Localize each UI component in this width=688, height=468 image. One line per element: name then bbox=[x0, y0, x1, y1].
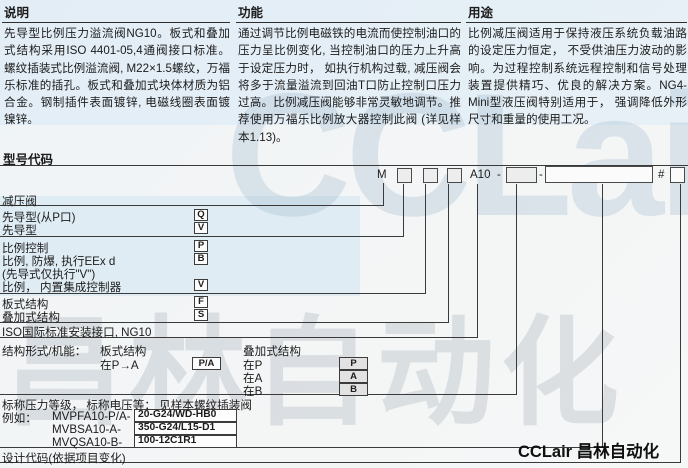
connector-box3 bbox=[448, 184, 449, 322]
label-iso-interface: ISO国际标准安装接口, NG10 bbox=[2, 324, 151, 340]
label-structure-header: 结构形式/机能： bbox=[2, 343, 86, 359]
section-application: 用途 比例减压阀适用于保持液压系统负载油路的设定压力恒定， 不受供油压力波动的影… bbox=[466, 2, 687, 129]
connector-a10 bbox=[477, 184, 478, 337]
code-prefix-m: M bbox=[377, 169, 387, 181]
reseller-logo-text: CCLair 昌林自动化 bbox=[518, 438, 659, 462]
example-value-3: 100-12C1R1 bbox=[134, 435, 237, 448]
rule-reducing-valve bbox=[0, 205, 384, 206]
section-function: 功能 通过调节比例电磁铁的电流而使控制油口的压力呈比例变化, 当控制油口的压力上… bbox=[236, 2, 461, 146]
function-body: 通过调节比例电磁铁的电流而使控制油口的压力呈比例变化, 当控制油口的压力上升高于… bbox=[238, 25, 461, 146]
code-box-design bbox=[670, 167, 685, 183]
example-model-3: MVQSA10-B- bbox=[52, 436, 122, 449]
codebox-p: P bbox=[194, 240, 208, 252]
application-title: 用途 bbox=[466, 2, 687, 23]
label-reducing-valve: 减压阀 bbox=[2, 193, 37, 209]
description-title: 说明 bbox=[2, 2, 230, 23]
label-examples: 例如： bbox=[2, 410, 37, 426]
example-model-2: MVBSA10-A- bbox=[52, 423, 121, 436]
code-box-pressure bbox=[506, 167, 537, 183]
codebox-stack-b: B bbox=[339, 383, 368, 396]
description-body: 先导型比例压力溢流阀NG10。板式和叠加式结构采用ISO 4401-05,4通阀… bbox=[4, 25, 230, 129]
code-hash: # bbox=[658, 169, 664, 181]
application-body: 比例减压阀适用于保持液压系统负载油路的设定压力恒定， 不受供油压力波动的影响。为… bbox=[468, 25, 687, 129]
code-dash-1: - bbox=[497, 169, 501, 181]
example-model-1: MVPFA10-P/A- bbox=[52, 410, 131, 423]
codebox-stack-p: P bbox=[339, 357, 368, 370]
codebox-q: Q bbox=[194, 209, 208, 221]
code-series-a10: A10 bbox=[470, 169, 490, 181]
connector-optionsbox bbox=[602, 184, 603, 447]
label-pilot: 先导型 bbox=[2, 222, 37, 238]
rule-mounting-group bbox=[0, 322, 449, 323]
catalog-page: CCLair 昌林自动化 说明 先导型比例压力溢流阀NG10。板式和叠加式结构采… bbox=[0, 0, 688, 468]
section-description: 说明 先导型比例压力溢流阀NG10。板式和叠加式结构采用ISO 4401-05,… bbox=[2, 2, 230, 129]
label-stack-type: 叠加式结构 bbox=[2, 309, 60, 325]
codebox-f: F bbox=[194, 296, 208, 308]
connector-pressurebox bbox=[516, 184, 517, 394]
codebox-b: B bbox=[194, 253, 208, 265]
code-box-options bbox=[545, 166, 653, 183]
example-value-1: 20-G24/WD-HB0 bbox=[134, 409, 237, 422]
label-in-p-to-a: 在P→A bbox=[100, 357, 139, 373]
codebox-v1: V bbox=[194, 222, 208, 234]
codebox-s: S bbox=[194, 309, 208, 321]
label-proportional-integrated: 比例， 内置集成控制器 bbox=[2, 279, 121, 295]
connector-box1 bbox=[403, 184, 404, 236]
connector-box2 bbox=[425, 184, 426, 293]
codebox-pa: P/A bbox=[192, 357, 221, 370]
rule-pilot-group bbox=[0, 236, 404, 237]
code-dash-2: - bbox=[539, 169, 543, 181]
example-value-2: 350-G24/L15-D1 bbox=[134, 422, 237, 435]
code-box-3 bbox=[447, 168, 462, 183]
connector-designbox bbox=[680, 184, 681, 462]
code-box-1 bbox=[397, 168, 412, 183]
connector-m bbox=[383, 183, 384, 206]
label-design-code: 设计代码(依据项目变化) bbox=[2, 450, 126, 466]
codebox-stack-a: A bbox=[339, 370, 368, 383]
code-box-2 bbox=[423, 168, 438, 183]
function-title: 功能 bbox=[236, 2, 461, 23]
codebox-v2: V bbox=[194, 279, 208, 291]
